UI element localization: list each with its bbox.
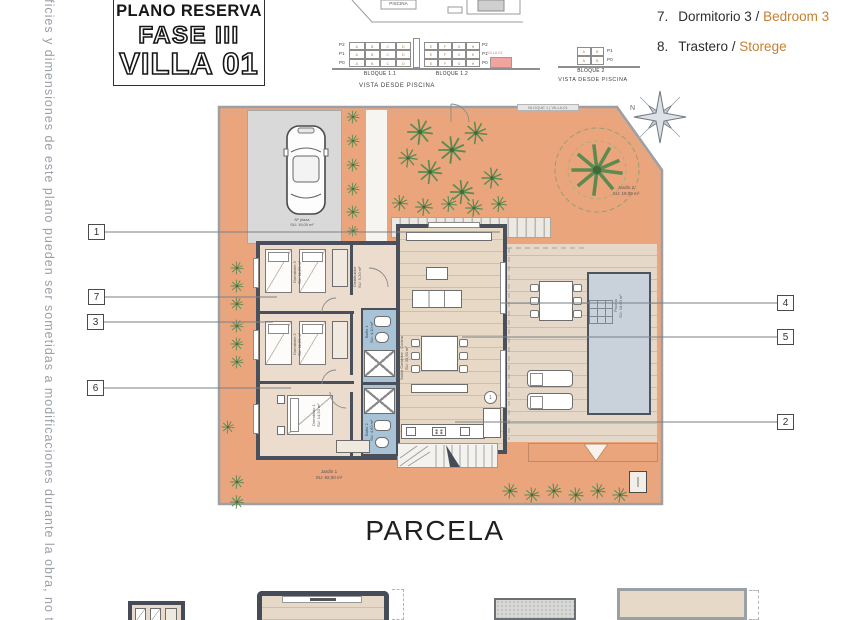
window bbox=[253, 330, 259, 360]
bottom-detail-slab bbox=[617, 588, 747, 620]
pool-label: Piscina SU: 18,60 m² bbox=[613, 286, 623, 326]
sliding-door bbox=[428, 222, 480, 228]
floor-plan-page: erficies y dimensiones de este plano pue… bbox=[0, 0, 850, 620]
dining-table bbox=[421, 336, 458, 371]
callout-1: 1 bbox=[88, 224, 105, 240]
wardrobe bbox=[165, 608, 177, 620]
outdoor-table bbox=[539, 281, 573, 321]
oven-icon bbox=[460, 427, 470, 436]
kitchen-sink-icon bbox=[406, 427, 416, 436]
shower-icon bbox=[364, 388, 395, 414]
callout-6: 6 bbox=[87, 380, 104, 396]
nightstand bbox=[277, 426, 285, 435]
hall-label: Distribuidor SU: 5,20 m² bbox=[352, 260, 362, 294]
fridge-column bbox=[483, 408, 501, 438]
glass-door bbox=[500, 350, 506, 408]
chair bbox=[459, 352, 468, 360]
kitchen-island bbox=[411, 384, 468, 393]
bedroom1-label: Dormitorio 1 SU: 14,50 m² bbox=[311, 396, 321, 434]
pergola-band bbox=[528, 443, 658, 462]
wall-br3-br2 bbox=[258, 311, 354, 314]
glass-door bbox=[500, 262, 506, 314]
wall-br2-br1 bbox=[258, 381, 354, 384]
wall-bath-divider bbox=[361, 382, 398, 385]
north-label: N bbox=[630, 105, 635, 112]
window bbox=[253, 404, 259, 434]
chair bbox=[459, 339, 468, 347]
hob-icon bbox=[432, 427, 446, 436]
bedroom3-label: Dormitorio 3 SU: 11,20 m² bbox=[292, 252, 302, 292]
parcela-caption: PARCELA bbox=[340, 515, 530, 547]
callout-5: 5 bbox=[777, 329, 794, 345]
pillow bbox=[290, 398, 299, 432]
toilet-icon bbox=[375, 437, 389, 448]
chair bbox=[411, 352, 420, 360]
wardrobe bbox=[332, 321, 348, 359]
chair bbox=[411, 365, 420, 373]
bottom-dashed-extension bbox=[392, 589, 404, 620]
sink-icon bbox=[374, 316, 391, 327]
chair bbox=[573, 284, 582, 292]
toilet-icon bbox=[375, 332, 389, 343]
bed bbox=[299, 249, 326, 293]
bed bbox=[299, 321, 326, 365]
pillow bbox=[268, 252, 289, 262]
sun-lounger bbox=[527, 370, 573, 387]
pillow bbox=[268, 324, 289, 334]
pillow bbox=[302, 324, 323, 334]
bottom-detail-plan-2 bbox=[257, 591, 389, 620]
nightstand bbox=[277, 395, 285, 404]
callout-3: 3 bbox=[87, 314, 104, 330]
parking-label: Nº plaza SU: 19,00 m² bbox=[280, 217, 324, 227]
lounger-pillow bbox=[530, 396, 543, 409]
sun-lounger bbox=[527, 393, 573, 410]
bottom-dashed-extension-2 bbox=[749, 590, 759, 620]
chair bbox=[573, 310, 582, 318]
bedroom2-label: Dormitorio 2 SU: 11,20 m² bbox=[292, 324, 302, 364]
niche-bar bbox=[310, 598, 336, 601]
bottom-detail-plan-1 bbox=[128, 601, 185, 620]
chair bbox=[530, 297, 539, 305]
bed bbox=[265, 249, 292, 293]
garden2-label: Jardín 2 SU: 19,00 m² bbox=[604, 185, 648, 197]
chair bbox=[530, 310, 539, 318]
bottom-detail-stone-pad bbox=[494, 598, 576, 620]
window bbox=[253, 258, 259, 288]
pool-steps bbox=[589, 300, 613, 324]
bath2-label: Baño 2 SU: 4,60 m² bbox=[364, 416, 374, 444]
chair bbox=[459, 365, 468, 373]
pool-equipment-box bbox=[629, 471, 647, 493]
bed bbox=[265, 321, 292, 365]
sink-icon bbox=[374, 420, 391, 431]
bed-double bbox=[287, 395, 333, 435]
lounger-pillow bbox=[530, 373, 543, 386]
wall-corridor-2 bbox=[350, 313, 353, 375]
callout-2: 2 bbox=[777, 414, 794, 430]
coffee-table bbox=[426, 267, 448, 280]
wardrobe bbox=[332, 249, 348, 287]
garden1-label: Jardín 1 SU: 92,00 m² bbox=[304, 469, 354, 481]
chair bbox=[573, 297, 582, 305]
utility-circle-icon: 1 bbox=[484, 391, 497, 404]
shower-icon bbox=[364, 350, 395, 377]
bath1-label: Baño 1 SU: 4,10 m² bbox=[364, 318, 374, 346]
chair bbox=[530, 284, 539, 292]
tv-cabinet bbox=[406, 232, 492, 241]
bed bbox=[150, 608, 161, 620]
entry-walkway bbox=[366, 110, 387, 244]
salon-label: Salón Comedor - Cocina SU: 33,90 m² bbox=[399, 334, 409, 382]
callout-4: 4 bbox=[777, 295, 794, 311]
callout-7: 7 bbox=[88, 289, 105, 305]
pillow bbox=[302, 252, 323, 262]
bed bbox=[135, 608, 146, 620]
sofa bbox=[412, 290, 462, 308]
chair bbox=[411, 339, 420, 347]
block-tag-strip: BLOQUE 1 | VILLA 01 bbox=[517, 104, 579, 111]
stairs-area bbox=[397, 443, 498, 468]
